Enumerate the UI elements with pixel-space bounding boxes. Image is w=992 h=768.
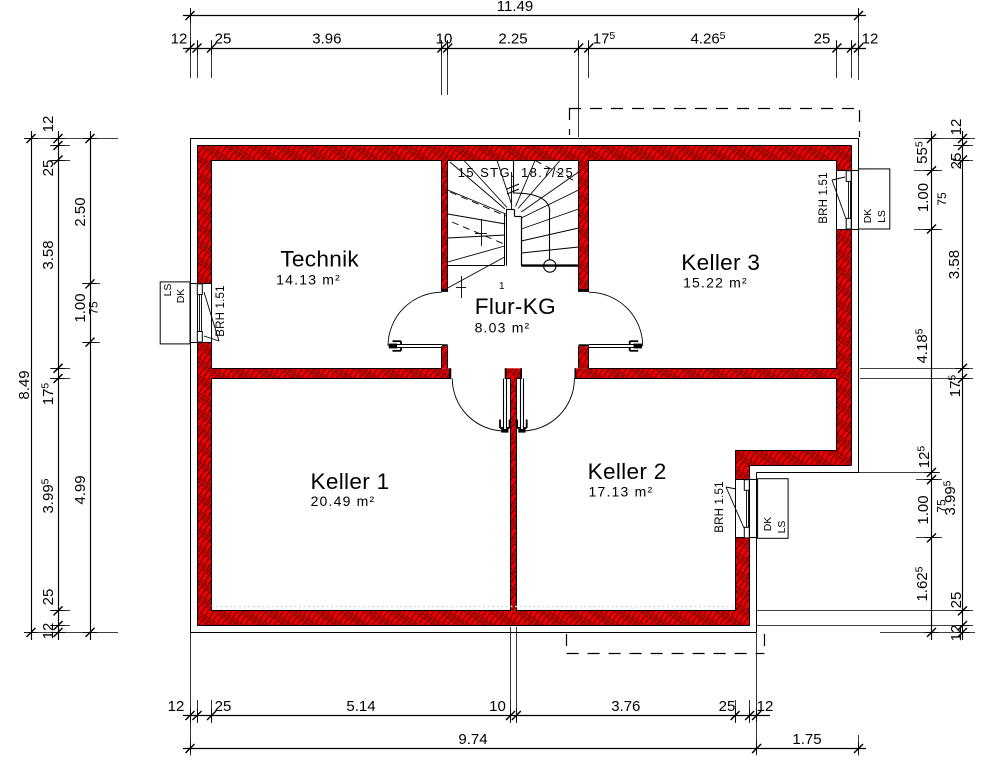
svg-text:3.96: 3.96 — [312, 31, 341, 48]
svg-text:1.75: 1.75 — [792, 731, 821, 748]
svg-text:25: 25 — [948, 153, 965, 170]
svg-text:12: 12 — [40, 623, 57, 640]
svg-text:12: 12 — [171, 31, 188, 48]
svg-text:15 STG. 18.7/25: 15 STG. 18.7/25 — [458, 165, 574, 180]
svg-text:14.13 m²: 14.13 m² — [276, 272, 341, 288]
svg-text:12: 12 — [862, 31, 879, 48]
svg-text:15.22 m²: 15.22 m² — [683, 275, 748, 291]
svg-text:DK: DK — [862, 209, 874, 224]
svg-text:25: 25 — [40, 589, 57, 606]
svg-text:8.49: 8.49 — [16, 370, 33, 399]
svg-text:25: 25 — [814, 31, 831, 48]
svg-text:17.13 m²: 17.13 m² — [588, 484, 653, 500]
svg-text:Keller 3: Keller 3 — [681, 250, 760, 275]
svg-text:12: 12 — [757, 698, 774, 715]
svg-text:25: 25 — [215, 31, 232, 48]
svg-text:9.74: 9.74 — [458, 731, 487, 748]
svg-text:8.03 m²: 8.03 m² — [475, 320, 531, 336]
svg-text:1: 1 — [499, 281, 505, 292]
svg-text:LS: LS — [876, 210, 888, 223]
svg-text:Keller 2: Keller 2 — [588, 459, 667, 484]
svg-text:BRH 1.51: BRH 1.51 — [818, 172, 830, 223]
svg-text:3.76: 3.76 — [611, 698, 640, 715]
svg-text:3.58: 3.58 — [40, 240, 57, 269]
svg-text:20.49 m²: 20.49 m² — [311, 493, 376, 509]
svg-text:3.58: 3.58 — [946, 250, 963, 279]
svg-text:DK: DK — [175, 289, 187, 304]
svg-text:10: 10 — [489, 698, 506, 715]
svg-text:11.49: 11.49 — [497, 0, 533, 15]
svg-text:2.25: 2.25 — [498, 31, 527, 48]
svg-text:12: 12 — [948, 625, 965, 642]
svg-text:25: 25 — [215, 698, 232, 715]
svg-text:25: 25 — [948, 592, 965, 609]
svg-text:Keller 1: Keller 1 — [310, 469, 389, 494]
svg-text:12: 12 — [40, 116, 57, 133]
svg-text:4.99: 4.99 — [72, 475, 89, 504]
svg-text:1.00: 1.00 — [915, 495, 932, 524]
svg-text:12: 12 — [948, 119, 965, 136]
svg-text:10: 10 — [436, 31, 453, 48]
svg-text:25: 25 — [40, 160, 57, 177]
svg-text:2.50: 2.50 — [72, 197, 89, 226]
svg-text:BRH 1.51: BRH 1.51 — [215, 285, 227, 336]
svg-text:LS: LS — [776, 521, 788, 534]
svg-text:DK: DK — [762, 517, 774, 532]
svg-text:1.00: 1.00 — [915, 183, 932, 212]
svg-text:Flur-KG: Flur-KG — [475, 294, 556, 319]
svg-text:25: 25 — [719, 698, 736, 715]
svg-text:Technik: Technik — [280, 247, 359, 272]
svg-text:LS: LS — [162, 284, 174, 297]
svg-text:5.14: 5.14 — [346, 698, 375, 715]
svg-text:75: 75 — [87, 301, 101, 315]
svg-text:75: 75 — [935, 192, 949, 206]
svg-text:12: 12 — [168, 698, 185, 715]
svg-text:BRH 1.51: BRH 1.51 — [714, 481, 726, 532]
